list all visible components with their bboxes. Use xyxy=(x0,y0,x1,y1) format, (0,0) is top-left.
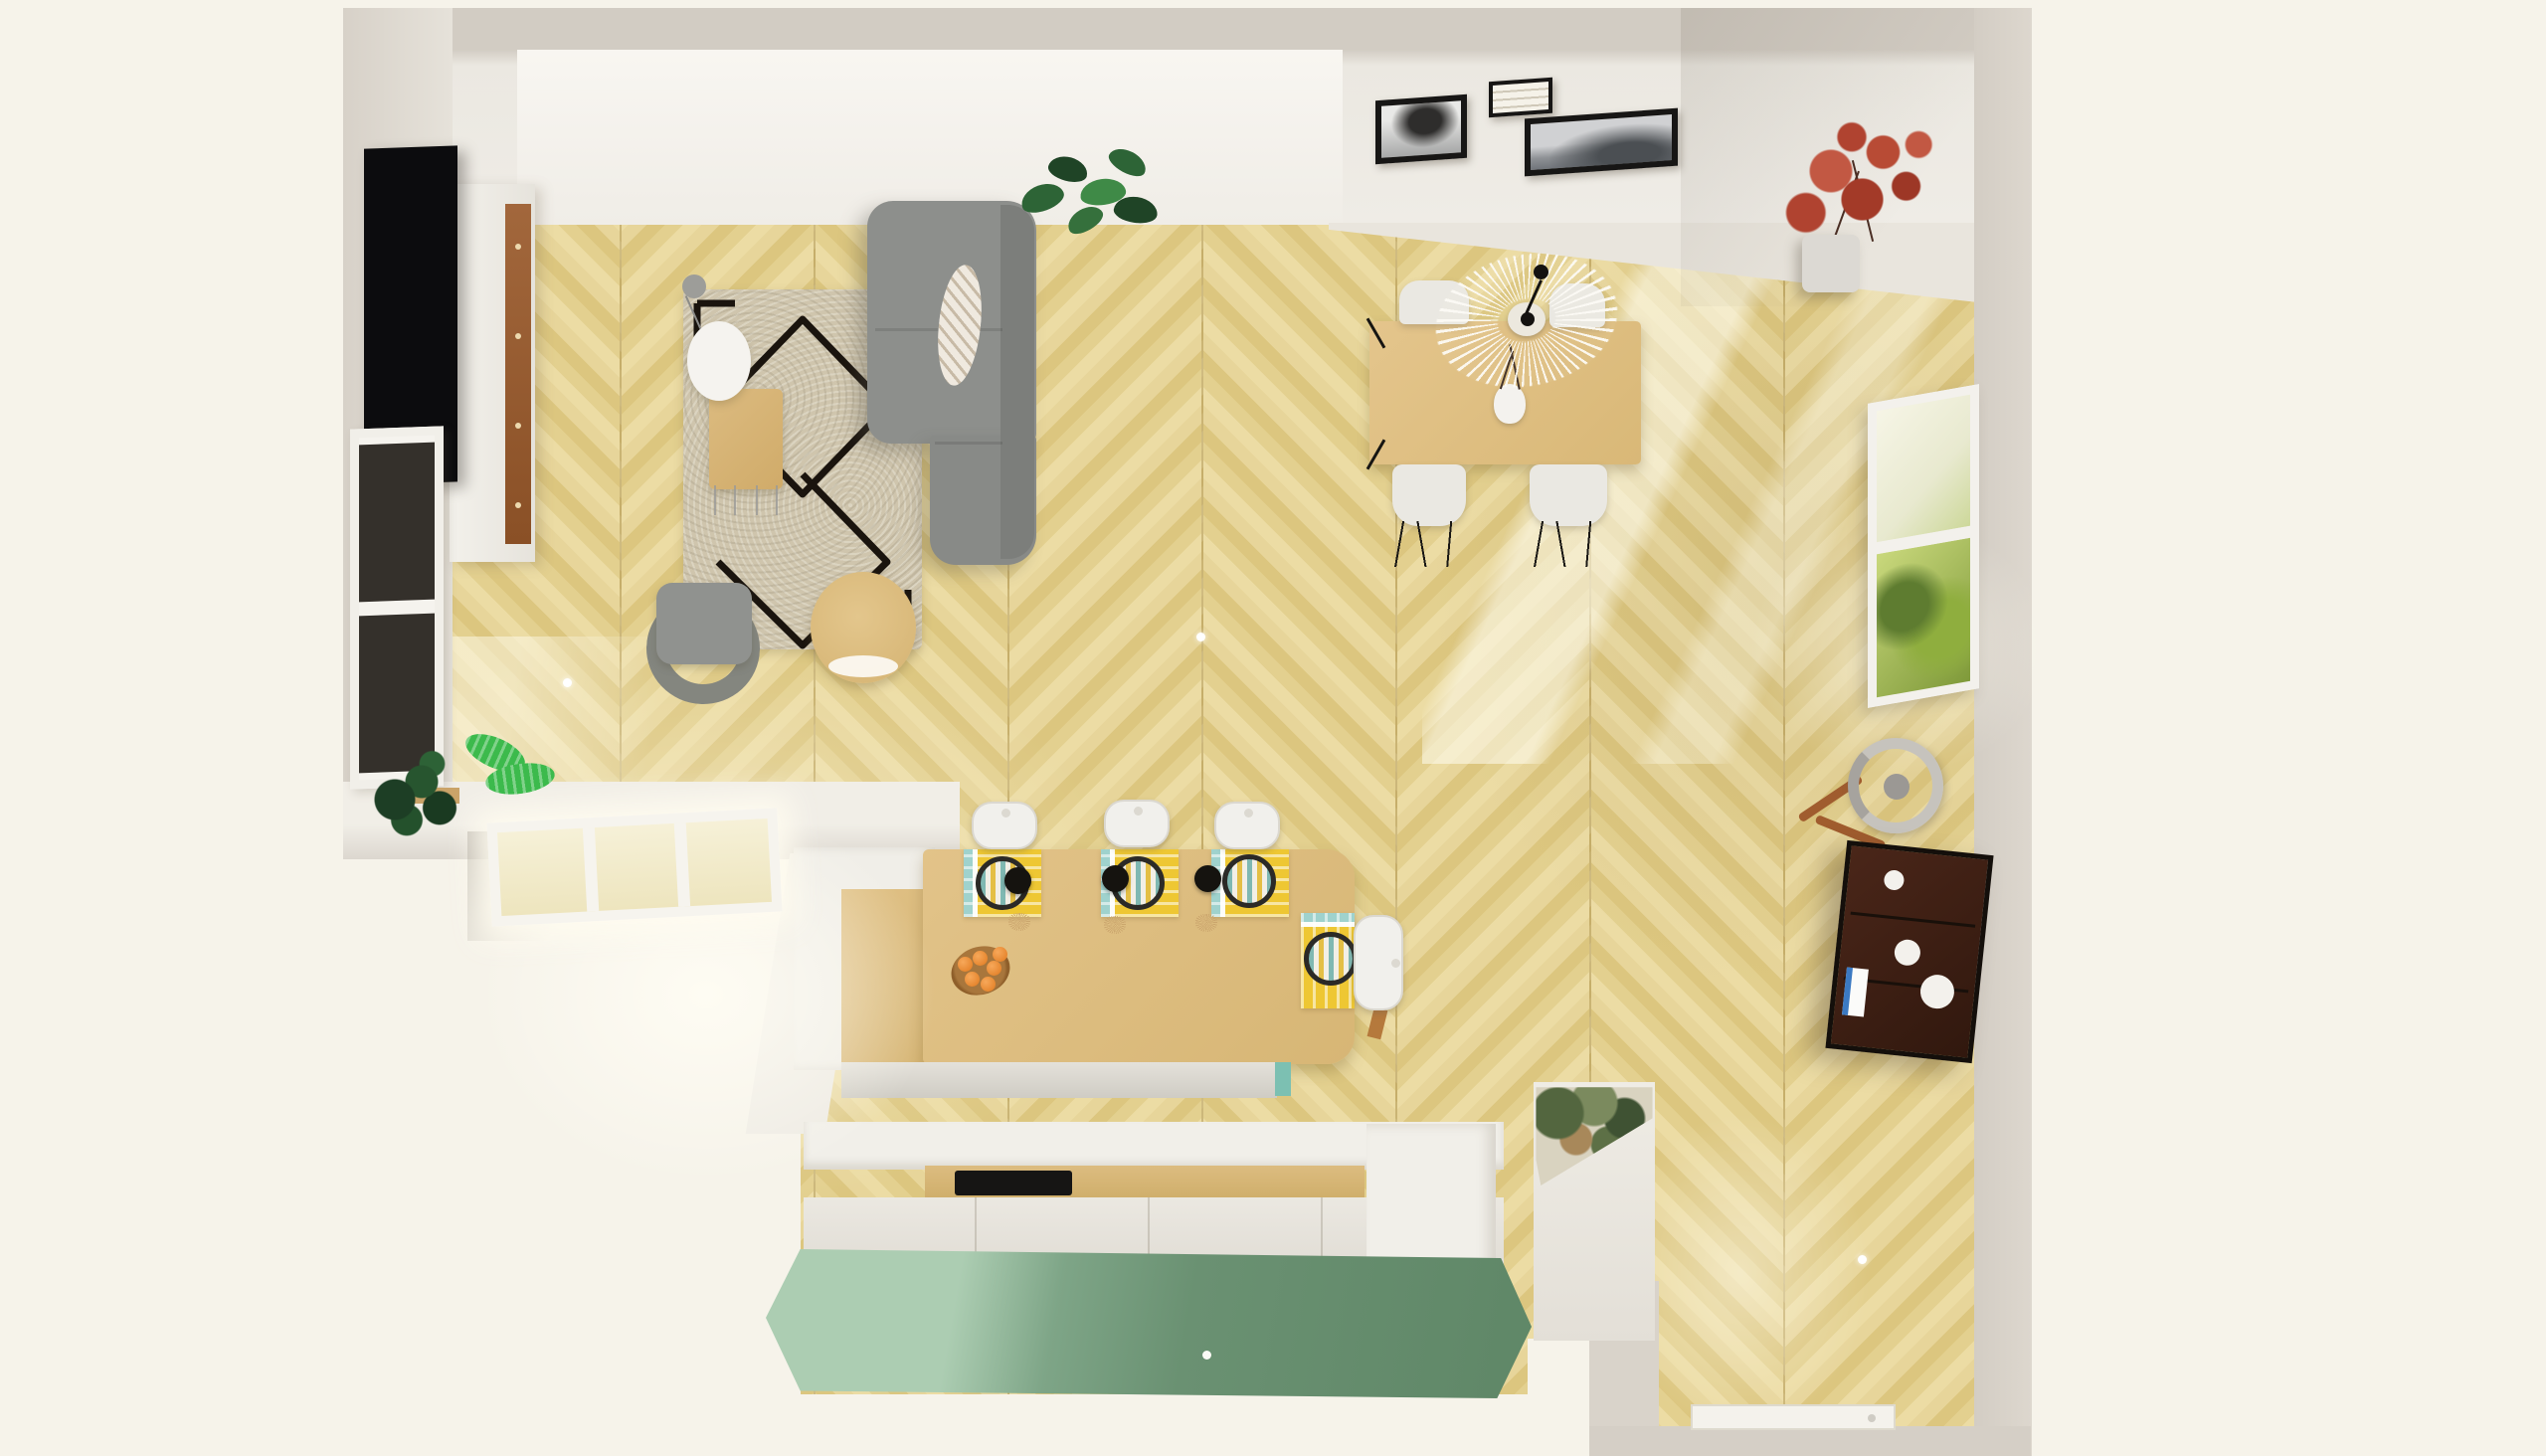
dark-shelving-unit[interactable] xyxy=(1825,840,1993,1063)
chair-legs xyxy=(1534,521,1603,567)
entrance-door[interactable] xyxy=(1691,1404,1896,1430)
coffee-table[interactable] xyxy=(709,389,783,489)
cereal-box xyxy=(1842,968,1869,1017)
bar-stool[interactable] xyxy=(972,802,1037,849)
mirror-center xyxy=(1884,774,1909,800)
orange xyxy=(973,951,988,966)
orange xyxy=(987,961,1001,976)
coffee-table-legs xyxy=(714,485,778,515)
side-table[interactable] xyxy=(687,321,751,401)
floor-lamp[interactable] xyxy=(682,274,706,298)
framed-landscape-photo[interactable] xyxy=(1525,108,1678,177)
pendant-counterweight xyxy=(1534,265,1548,279)
framed-script-print[interactable] xyxy=(1489,78,1552,117)
chair-legs xyxy=(1394,521,1464,567)
pendant-tassel xyxy=(1104,916,1126,934)
hallway-bottom-wall xyxy=(1589,1426,2031,1456)
floor-plan-render xyxy=(0,0,2546,1456)
red-maple-plant[interactable] xyxy=(1768,95,1977,284)
round-side-table[interactable] xyxy=(811,572,916,683)
orange xyxy=(981,977,996,992)
plate xyxy=(1222,854,1276,908)
wallpaper-wall-section xyxy=(1534,1082,1655,1341)
vase[interactable] xyxy=(1494,384,1526,424)
monstera-plant[interactable] xyxy=(1014,139,1164,269)
pendant-tassel xyxy=(1195,914,1217,932)
orange xyxy=(965,972,980,987)
plate xyxy=(1304,932,1358,986)
green-plant[interactable] xyxy=(350,734,499,853)
bar-stool[interactable] xyxy=(1214,802,1280,849)
exterior-ground xyxy=(796,1394,1595,1456)
black-pendant-light[interactable] xyxy=(1102,865,1129,892)
framed-tree-photo[interactable] xyxy=(1375,94,1467,164)
black-pendant-light[interactable] xyxy=(1004,867,1031,894)
pendant-center xyxy=(1521,312,1535,326)
green-sideboard[interactable] xyxy=(766,1249,1532,1398)
door-knob xyxy=(1868,1414,1876,1422)
downlight-reflection xyxy=(1858,1255,1867,1264)
sideboard-knob xyxy=(1202,1351,1211,1360)
pendant-tassel xyxy=(1008,913,1030,931)
black-pendant-light[interactable] xyxy=(1194,865,1221,892)
armchair[interactable] xyxy=(656,583,752,664)
sunlit-window[interactable] xyxy=(486,808,782,926)
orange xyxy=(993,947,1007,962)
dining-chair[interactable] xyxy=(1530,464,1607,526)
bar-stool[interactable] xyxy=(1104,800,1170,847)
tv-cabinet-walnut-front xyxy=(505,204,531,544)
orange xyxy=(958,957,973,972)
downlight-reflection xyxy=(563,678,572,687)
top-wall-face xyxy=(517,50,1343,225)
exterior-ground xyxy=(1528,1339,1593,1398)
sofa-cushion-seam xyxy=(935,442,1002,445)
dining-chair[interactable] xyxy=(1392,464,1466,526)
cooktop[interactable] xyxy=(955,1171,1072,1195)
downlight-reflection xyxy=(1196,633,1205,641)
bar-stool[interactable] xyxy=(1354,915,1403,1010)
teal-cabinet-accent xyxy=(1275,1062,1291,1096)
garden-window[interactable] xyxy=(1868,384,1979,708)
